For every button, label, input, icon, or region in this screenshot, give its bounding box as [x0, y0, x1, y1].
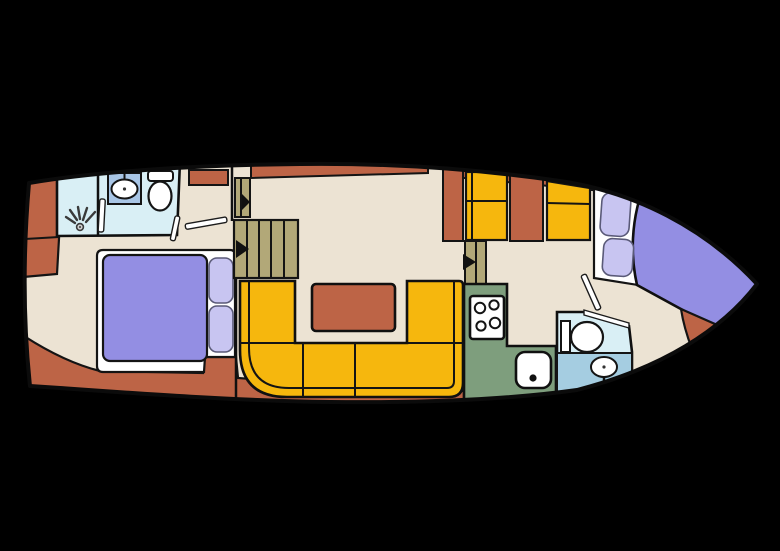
- aft-bed-pillow-bottom: [602, 238, 635, 277]
- cabinet-yellow-right: [547, 181, 590, 240]
- fore-bed-pillow-bottom: [209, 306, 233, 352]
- fore-steps-upper: [235, 178, 250, 217]
- fore-bed-blanket: [103, 255, 207, 361]
- fore-bed-pillow-top: [209, 258, 233, 303]
- stove-icon: [470, 296, 504, 339]
- fore-toilet-icon: [148, 171, 173, 211]
- fore-bed: [97, 250, 235, 372]
- shower-door: [98, 199, 105, 232]
- entry-cabinet: [189, 170, 228, 185]
- fore-washbasin-icon: [108, 173, 141, 204]
- aft-toilet-icon: [561, 321, 603, 352]
- aft-steps: [463, 241, 486, 284]
- salon-table: [312, 284, 395, 331]
- boat-floorplan-canvas: [0, 0, 780, 551]
- fore-steps-main: [234, 220, 298, 278]
- boat-floorplan: [0, 0, 780, 551]
- galley-sink-icon: [516, 352, 551, 388]
- cabinet-panel: [443, 164, 463, 241]
